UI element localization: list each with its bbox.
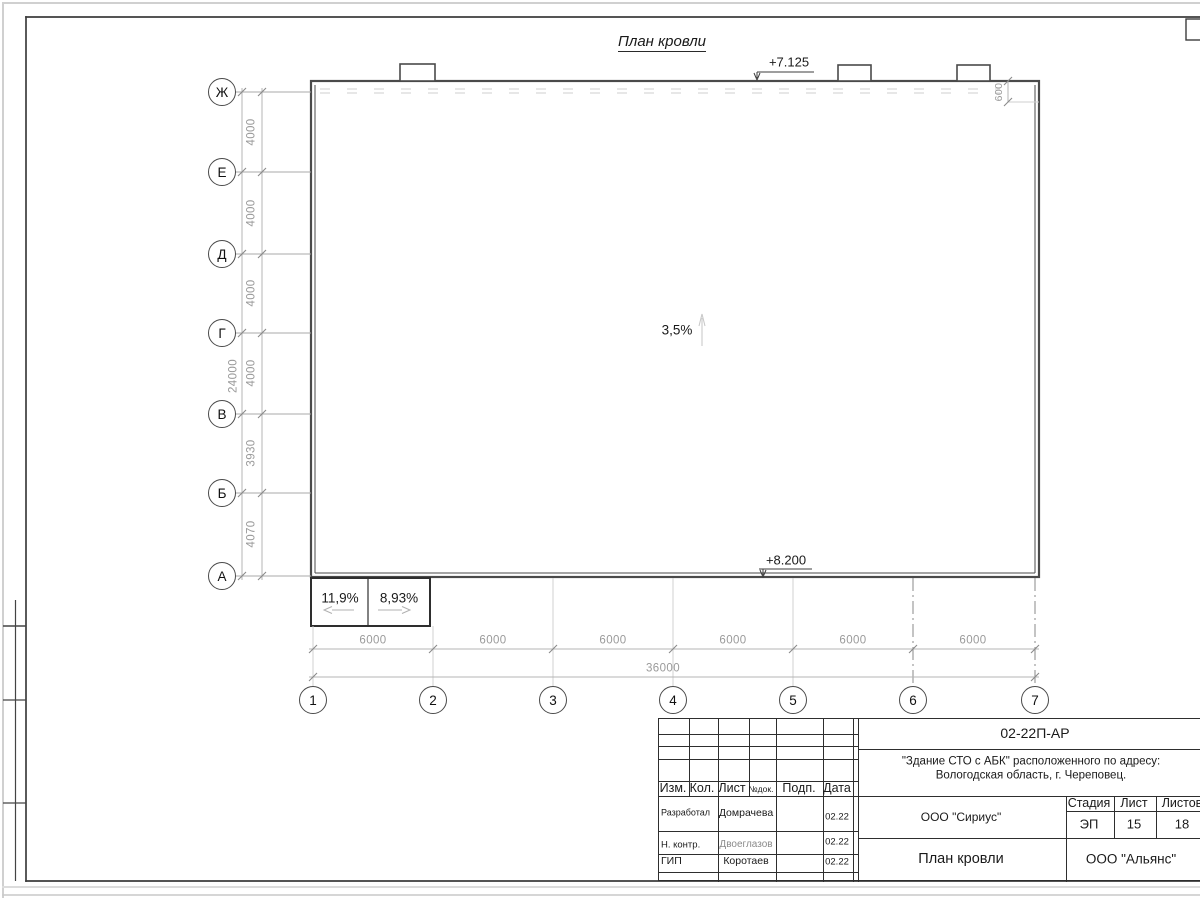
tb-col-kol: Кол. bbox=[690, 782, 715, 795]
row-total-dim: 24000 bbox=[228, 359, 240, 393]
tb-date-gip: 02.22 bbox=[825, 857, 849, 867]
tb-col-data: Дата bbox=[823, 782, 851, 795]
col-dim: 6000 bbox=[479, 635, 506, 647]
axis-col-label: 3 bbox=[549, 693, 557, 708]
tb-line bbox=[853, 719, 854, 882]
ramp-slope-left-label: 11,9% bbox=[321, 591, 358, 605]
tb-date-ncontrol: 02.22 bbox=[825, 837, 849, 847]
tb-line bbox=[659, 872, 858, 873]
axis-row-bubble-v: В bbox=[208, 400, 236, 428]
axis-row-label: Ж bbox=[216, 85, 228, 100]
tb-project-line2: Вологодская область, г. Череповец. bbox=[936, 770, 1126, 782]
tb-line bbox=[858, 719, 859, 882]
tb-stage-value: ЭП bbox=[1080, 818, 1099, 831]
axis-row-label: Е bbox=[217, 165, 226, 180]
tb-line bbox=[718, 719, 719, 882]
parapet-dim-label: 600 bbox=[994, 83, 1005, 102]
row-dim: 4000 bbox=[246, 359, 258, 386]
tb-col-izm: Изм. bbox=[660, 782, 687, 795]
tb-line bbox=[823, 719, 824, 882]
axis-col-label: 6 bbox=[909, 693, 917, 708]
axis-col-bubble-3: 3 bbox=[539, 686, 567, 714]
axis-col-label: 5 bbox=[789, 693, 797, 708]
elevation-bottom-label: +8.200 bbox=[766, 554, 806, 567]
tb-col-ndok: №док. bbox=[749, 785, 774, 794]
axis-row-label: Б bbox=[218, 486, 227, 501]
col-dim: 6000 bbox=[599, 635, 626, 647]
axis-col-label: 2 bbox=[429, 693, 437, 708]
row-dimension-lines bbox=[238, 88, 266, 580]
axis-col-label: 1 bbox=[309, 693, 317, 708]
roof-vents bbox=[400, 64, 990, 81]
tb-line bbox=[1066, 811, 1200, 812]
axis-col-bubble-1: 1 bbox=[299, 686, 327, 714]
tb-name-gip: Коротаев bbox=[723, 856, 768, 867]
axis-row-bubble-a: А bbox=[208, 562, 236, 590]
roof-slope-label: 3,5% bbox=[662, 323, 693, 337]
tb-org-design: ООО "Сириус" bbox=[921, 811, 1001, 823]
tb-line bbox=[1156, 796, 1157, 838]
tb-role-gip: ГИП bbox=[661, 856, 682, 867]
tb-date-developer: 02.22 bbox=[825, 812, 849, 822]
row-dim: 4000 bbox=[246, 118, 258, 145]
axis-col-bubble-5: 5 bbox=[779, 686, 807, 714]
tb-col-podp: Подп. bbox=[782, 782, 815, 795]
row-dim: 4070 bbox=[246, 520, 258, 547]
tb-col-stage: Стадия bbox=[1068, 797, 1111, 810]
axis-row-label: Г bbox=[218, 326, 225, 341]
axis-row-label: А bbox=[217, 569, 226, 584]
col-total-dim: 36000 bbox=[646, 663, 680, 675]
axis-row-bubble-zh: Ж bbox=[208, 78, 236, 106]
drawing-sheet: План кровли +7.125 +8.200 3,5% 600 11,9%… bbox=[0, 0, 1200, 900]
tb-sheet-title: План кровли bbox=[918, 852, 1003, 867]
tb-line bbox=[659, 796, 1200, 797]
tb-col-sheets: Листов bbox=[1162, 797, 1200, 810]
tb-project-line1: "Здание СТО с АБК" расположенного по адр… bbox=[902, 756, 1160, 768]
axis-row-bubble-e: Е bbox=[208, 158, 236, 186]
plan-title: План кровли bbox=[618, 34, 706, 52]
axis-row-bubble-d: Д bbox=[208, 240, 236, 268]
tb-name-developer: Домрачева bbox=[719, 808, 773, 819]
row-dim: 4000 bbox=[246, 279, 258, 306]
axis-row-bubble-b: Б bbox=[208, 479, 236, 507]
axis-col-label: 7 bbox=[1031, 693, 1039, 708]
tb-line bbox=[1114, 796, 1115, 838]
axis-row-bubble-g: Г bbox=[208, 319, 236, 347]
tb-sheet-value: 15 bbox=[1127, 818, 1141, 831]
col-dim: 6000 bbox=[839, 635, 866, 647]
col-dim: 6000 bbox=[719, 635, 746, 647]
tb-role-ncontrol: Н. контр. bbox=[661, 840, 700, 850]
tb-role-developer: Разработал bbox=[661, 809, 710, 818]
tb-org-customer: ООО "Альянс" bbox=[1086, 852, 1176, 866]
tb-line bbox=[858, 838, 1200, 839]
tb-sheets-value: 18 bbox=[1175, 818, 1189, 831]
ramp-slope-right-label: 8,93% bbox=[380, 591, 418, 605]
axis-col-bubble-2: 2 bbox=[419, 686, 447, 714]
col-dim: 6000 bbox=[959, 635, 986, 647]
tb-line bbox=[858, 749, 1200, 750]
tb-line bbox=[659, 831, 858, 832]
tb-line bbox=[776, 719, 777, 882]
axis-row-label: В bbox=[217, 407, 226, 422]
left-margin-table bbox=[3, 600, 26, 881]
tb-col-list: Лист bbox=[718, 782, 745, 795]
row-dim: 3930 bbox=[246, 439, 258, 466]
axis-row-label: Д bbox=[217, 247, 226, 262]
tb-doc-code: 02-22П-АР bbox=[1000, 726, 1069, 740]
tb-name-ncontrol: Двоеглазов bbox=[719, 840, 772, 850]
axis-col-bubble-7: 7 bbox=[1021, 686, 1049, 714]
axis-col-label: 4 bbox=[669, 693, 677, 708]
col-dim: 6000 bbox=[359, 635, 386, 647]
axis-col-bubble-4: 4 bbox=[659, 686, 687, 714]
row-dim: 4000 bbox=[246, 199, 258, 226]
axis-col-bubble-6: 6 bbox=[899, 686, 927, 714]
row-axes-lines bbox=[234, 92, 311, 576]
tb-col-sheet: Лист bbox=[1120, 797, 1147, 810]
elevation-top-label: +7.125 bbox=[769, 56, 809, 69]
